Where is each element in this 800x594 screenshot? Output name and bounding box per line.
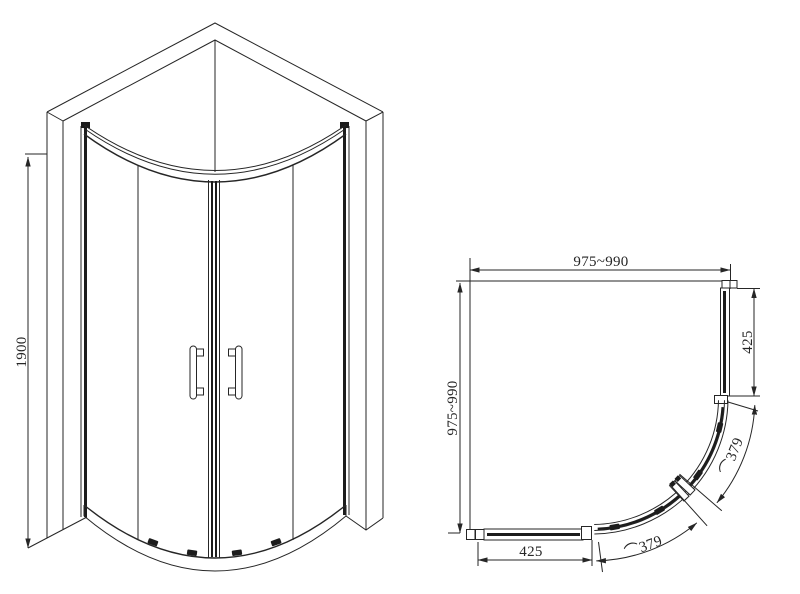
height-dimension-label: 1900 bbox=[14, 336, 30, 367]
panel-bottom-bracket bbox=[715, 396, 728, 404]
door-handle-right bbox=[229, 346, 243, 399]
center-door-stiles bbox=[212, 181, 216, 557]
handle-bar bbox=[236, 346, 243, 399]
width-dimension-label: 975~990 bbox=[573, 254, 628, 270]
track-inner-arc bbox=[594, 400, 718, 524]
wall-profile-block bbox=[467, 530, 476, 540]
wall-end-block bbox=[476, 530, 485, 540]
floor-edges bbox=[28, 516, 383, 548]
side-panel-right bbox=[715, 281, 738, 404]
handle-bar bbox=[190, 346, 197, 399]
front-panel-dimension: 425 bbox=[478, 540, 592, 566]
depth-dimension-left: 975~990 bbox=[445, 283, 461, 533]
glass-panels bbox=[138, 165, 293, 558]
bottom-rollers bbox=[147, 538, 281, 556]
plan-rollers bbox=[609, 422, 723, 531]
quadrant-track-arcs bbox=[594, 400, 728, 534]
frame-top-bracket-left bbox=[81, 122, 90, 128]
depth-dimension-label: 975~990 bbox=[445, 380, 461, 435]
plan-view: 975~990 975~990 425 425 ⌒379 ⌒379 bbox=[445, 254, 760, 572]
frame-top-bracket-right bbox=[340, 122, 349, 128]
roller-icon bbox=[716, 422, 724, 433]
center-stile-outlines bbox=[209, 180, 220, 558]
wall-end-block bbox=[730, 281, 737, 289]
sliding-door-arc-right bbox=[688, 407, 723, 487]
arc-value: 379 bbox=[637, 533, 664, 556]
side-panel-dimension-label: 425 bbox=[740, 330, 756, 353]
wall-profile-block bbox=[722, 281, 730, 289]
panel-end-bracket bbox=[582, 527, 592, 540]
door-arc-dimension-label: ⌒379 bbox=[622, 532, 664, 561]
side-panel-dimension: 425 bbox=[730, 289, 760, 397]
plan-walls bbox=[456, 281, 733, 537]
track-outer-arc bbox=[594, 400, 728, 534]
technical-drawing-page: 1900 bbox=[0, 0, 800, 594]
roller-icon bbox=[609, 523, 620, 530]
shower-enclosure-drawing: 1900 bbox=[0, 0, 800, 594]
front-elevation-view: 1900 bbox=[14, 23, 383, 571]
width-dimension-top: 975~990 bbox=[470, 254, 731, 281]
front-panel-bottom bbox=[467, 527, 592, 541]
door-handle-left bbox=[190, 346, 204, 399]
roller-icon bbox=[232, 549, 243, 556]
front-panel-dimension-label: 425 bbox=[519, 544, 542, 560]
height-dimension: 1900 bbox=[14, 154, 47, 548]
